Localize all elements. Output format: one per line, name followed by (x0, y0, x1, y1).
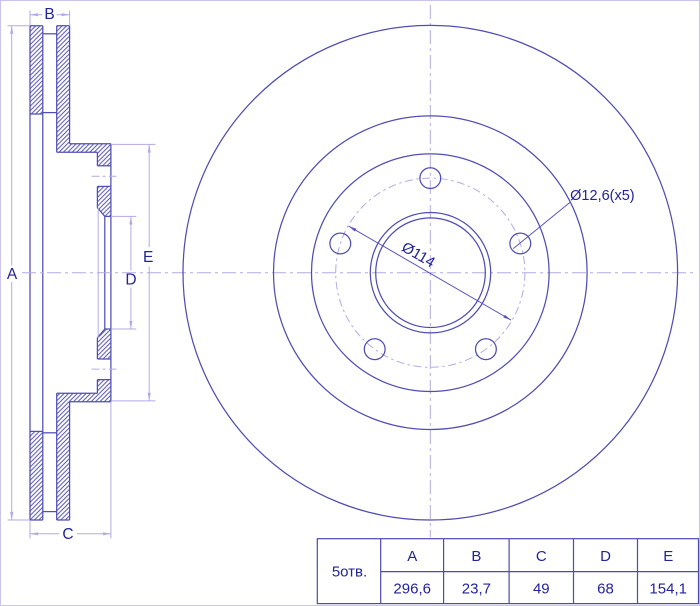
svg-text:B: B (44, 6, 54, 23)
svg-text:D: D (125, 272, 136, 289)
svg-text:23,7: 23,7 (462, 581, 491, 598)
svg-text:E: E (663, 548, 673, 565)
svg-text:A: A (7, 266, 18, 283)
svg-text:E: E (143, 249, 153, 266)
svg-text:A: A (407, 548, 417, 565)
svg-text:68: 68 (597, 581, 614, 598)
svg-text:D: D (600, 548, 611, 565)
svg-text:49: 49 (533, 581, 550, 598)
svg-text:B: B (471, 548, 481, 565)
svg-text:5отв.: 5отв. (332, 564, 367, 581)
svg-text:Ø12,6(x5): Ø12,6(x5) (570, 188, 634, 204)
svg-text:154,1: 154,1 (649, 581, 687, 598)
svg-text:C: C (536, 548, 547, 565)
svg-text:C: C (62, 526, 73, 543)
svg-text:296,6: 296,6 (393, 581, 431, 598)
